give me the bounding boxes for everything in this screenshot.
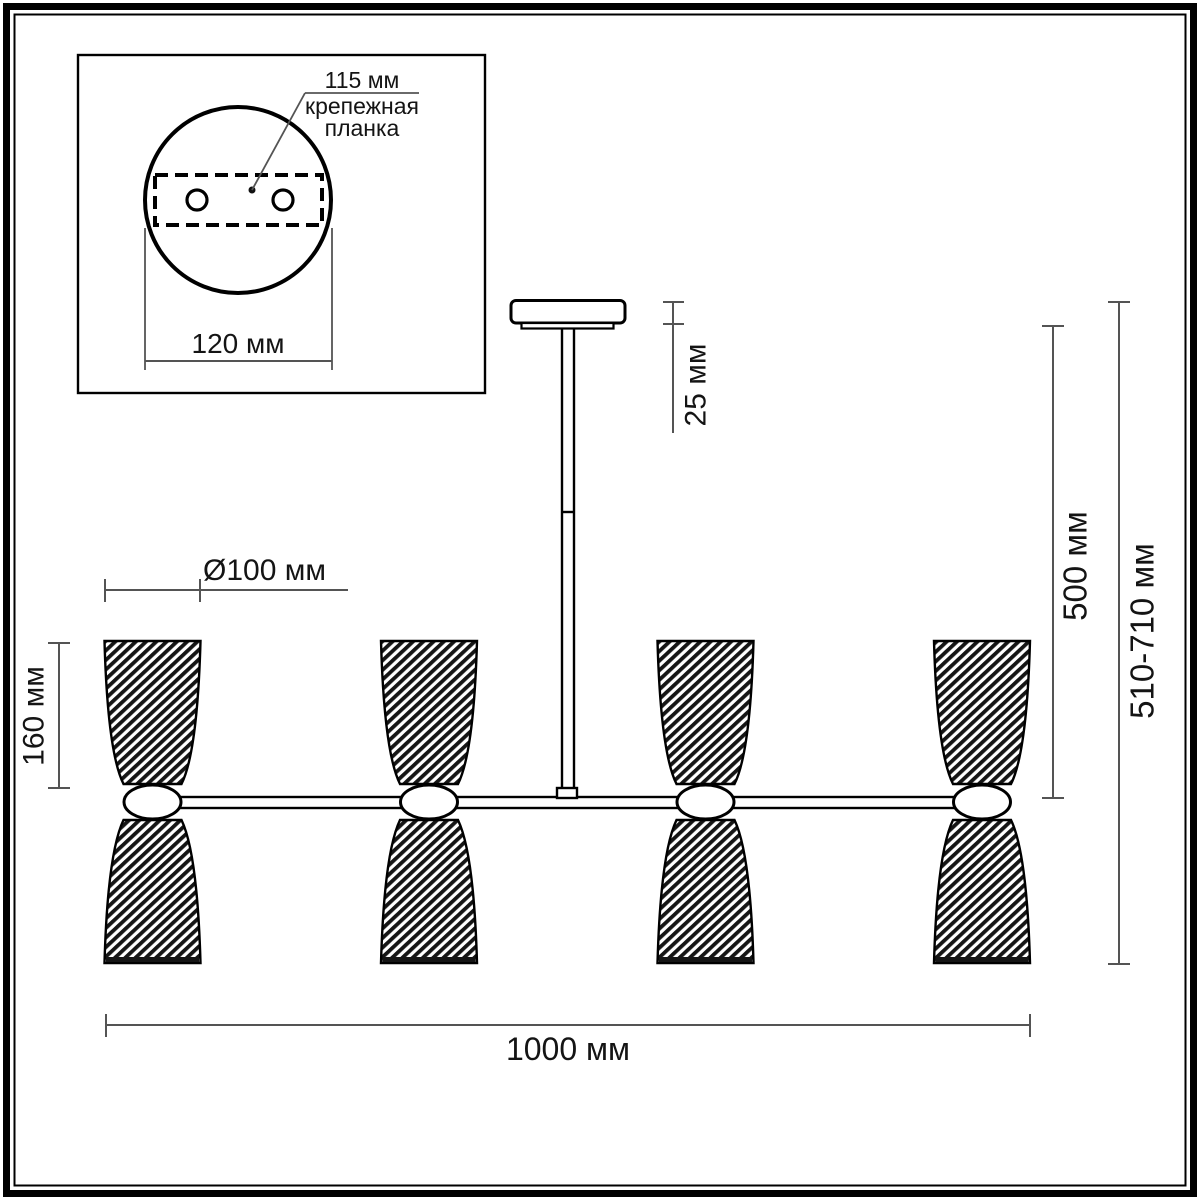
socket-hub: [954, 785, 1011, 819]
canopy-top-view-inset: 115 мм крепежная планка 120 мм: [78, 55, 485, 393]
fixture-side-view: [105, 301, 1031, 964]
dimension-shade-diameter: Ø100 мм: [105, 554, 348, 602]
mounting-hole-right: [273, 190, 293, 210]
upper-shade: [105, 641, 201, 784]
hole-spacing-label: 115 мм: [325, 67, 400, 93]
overall-width-label: 1000 мм: [506, 1031, 630, 1067]
suspension-rod: [562, 328, 574, 789]
lower-shade-base-band: [106, 957, 199, 962]
mount-plate-label-line2: планка: [325, 115, 400, 141]
dimension-rod-length: 500 мм: [1042, 326, 1094, 798]
mounting-hole-left: [187, 190, 207, 210]
lower-shade-base-band: [383, 957, 476, 962]
ceiling-canopy: [511, 301, 625, 324]
upper-shade: [934, 641, 1030, 784]
lower-shade: [658, 820, 754, 963]
canopy-diameter-label: 120 мм: [192, 328, 285, 359]
upper-shade: [658, 641, 754, 784]
shade-diameter-label: Ø100 мм: [203, 554, 326, 587]
socket-hub: [401, 785, 458, 819]
technical-drawing-page: 115 мм крепежная планка 120 мм: [0, 0, 1200, 1200]
dimension-overall-height: 510-710 мм: [1108, 302, 1161, 964]
shade-height-label: 160 мм: [18, 666, 51, 766]
canopy-height-label: 25 мм: [680, 344, 713, 427]
dimension-shade-height: 160 мм: [18, 643, 71, 788]
rod-length-label: 500 мм: [1057, 511, 1094, 621]
lower-shade-base-band: [936, 957, 1029, 962]
canopy-circle: [145, 107, 331, 293]
overall-height-label: 510-710 мм: [1124, 543, 1161, 719]
rod-foot-connector: [557, 788, 577, 798]
socket-hub: [124, 785, 181, 819]
ceiling-canopy-lip: [522, 323, 614, 329]
lower-shade: [381, 820, 477, 963]
lower-shade: [105, 820, 201, 963]
lower-shade-base-band: [659, 957, 752, 962]
socket-hub: [677, 785, 734, 819]
dimension-canopy-height: 25 мм: [663, 302, 713, 433]
dimension-overall-width: 1000 мм: [106, 1014, 1030, 1067]
upper-shade: [381, 641, 477, 784]
lower-shade: [934, 820, 1030, 963]
fixture-dimension-diagram: 115 мм крепежная планка 120 мм: [0, 0, 1200, 1200]
